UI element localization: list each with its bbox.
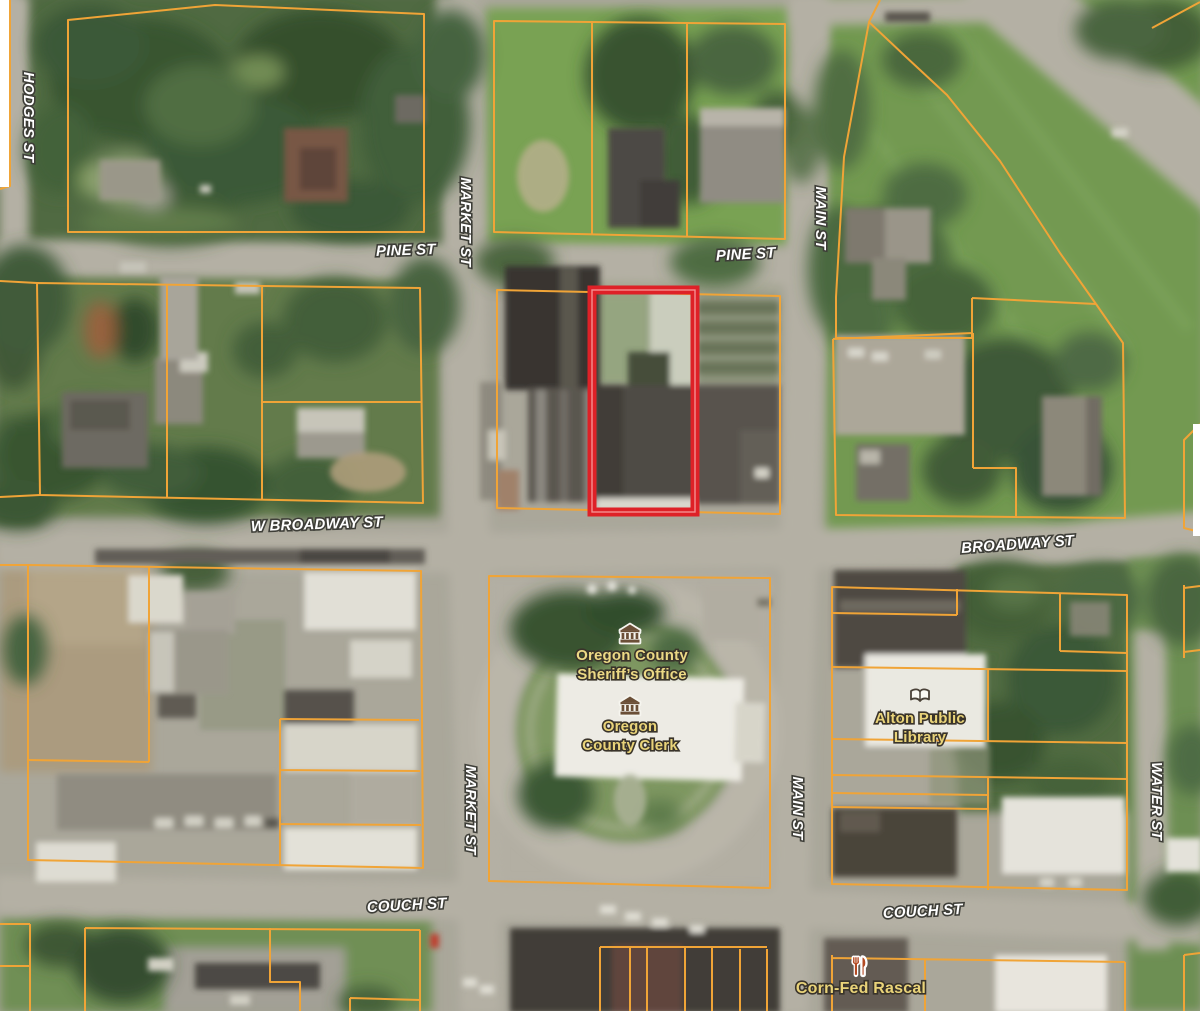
svg-text:County Clerk: County Clerk [582,737,678,754]
svg-text:MAIN ST: MAIN ST [812,186,829,251]
svg-text:MARKET ST: MARKET ST [457,177,474,268]
svg-text:Alton Public: Alton Public [875,710,965,727]
svg-text:PINE ST: PINE ST [715,244,777,264]
svg-text:Oregon County: Oregon County [576,647,688,664]
svg-text:PINE ST: PINE ST [376,241,438,260]
svg-text:Oregon: Oregon [603,718,658,735]
svg-text:Library: Library [894,729,947,746]
svg-text:WATER ST: WATER ST [1148,762,1165,842]
svg-text:MAIN ST: MAIN ST [789,776,806,841]
svg-text:MARKET ST: MARKET ST [462,765,479,856]
svg-text:Sheriff’s Office: Sheriff’s Office [577,666,687,683]
svg-text:Corn-Fed Rascal: Corn-Fed Rascal [796,980,926,997]
svg-text:HODGES ST: HODGES ST [20,72,37,164]
